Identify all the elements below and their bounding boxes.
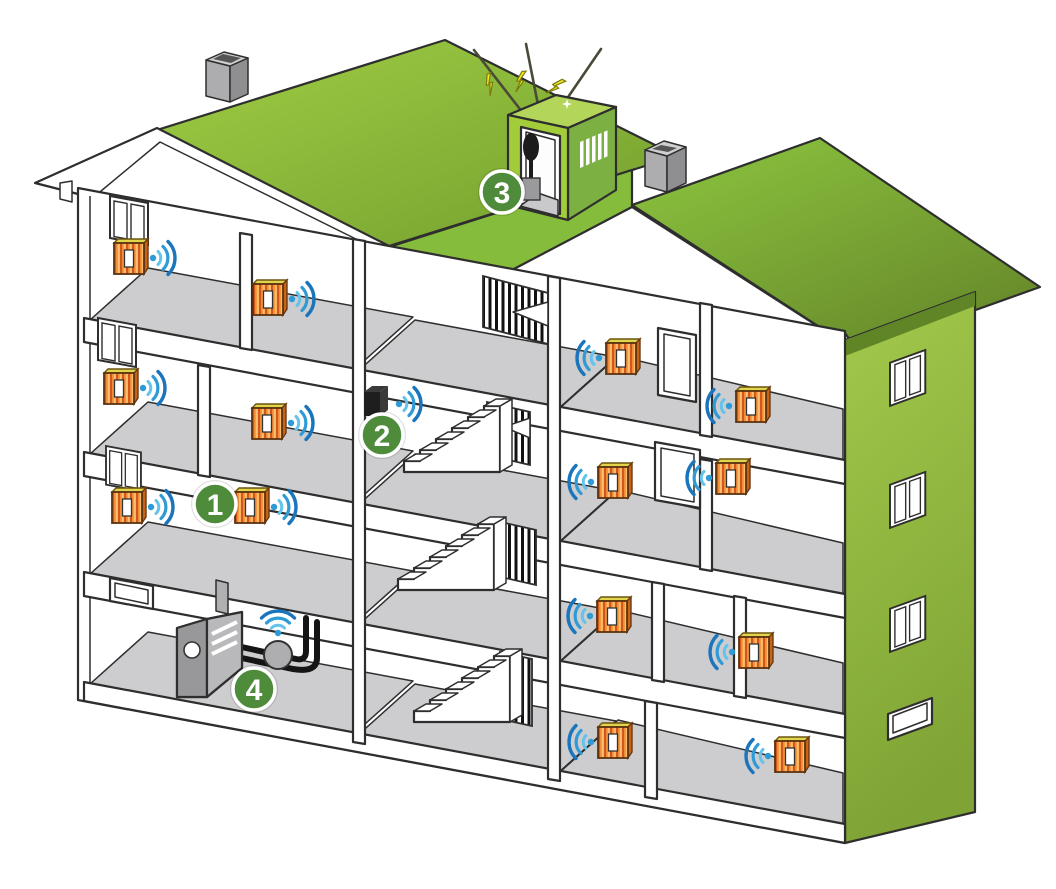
radiator-icon <box>252 404 286 439</box>
marker-3-number: 3 <box>494 177 511 210</box>
marker-2-number: 2 <box>374 420 391 453</box>
marker-1-badge[interactable]: 1 <box>192 481 238 527</box>
heat-meter-icon <box>264 641 292 669</box>
side-wall <box>845 292 975 843</box>
radiator-icon <box>606 339 640 374</box>
chimney-icon <box>206 52 248 102</box>
door-frame <box>658 328 696 402</box>
marker-3-badge[interactable]: 3 <box>479 169 525 215</box>
chimney-icon <box>645 141 686 192</box>
radiator-icon <box>598 723 632 758</box>
radiator-icon <box>114 239 148 274</box>
marker-4-number: 4 <box>246 674 263 707</box>
window-icon <box>106 446 141 491</box>
radiator-icon <box>739 633 773 668</box>
building-cutaway-diagram: 1 2 3 4 <box>0 0 1056 889</box>
radiator-icon <box>716 459 750 494</box>
radiator-icon <box>104 369 138 404</box>
radiator-icon <box>253 280 287 315</box>
marker-2-badge[interactable]: 2 <box>359 412 405 458</box>
radiator-icon <box>736 387 770 422</box>
radiator-icon <box>597 597 631 632</box>
radiator-icon <box>775 737 809 772</box>
marker-4-badge[interactable]: 4 <box>231 666 277 712</box>
radiator-icon <box>112 488 146 523</box>
marker-1-number: 1 <box>207 489 224 522</box>
radiator-icon <box>235 488 269 523</box>
radiator-icon <box>598 463 632 498</box>
window-icon <box>98 318 136 367</box>
window-icon <box>110 196 148 245</box>
